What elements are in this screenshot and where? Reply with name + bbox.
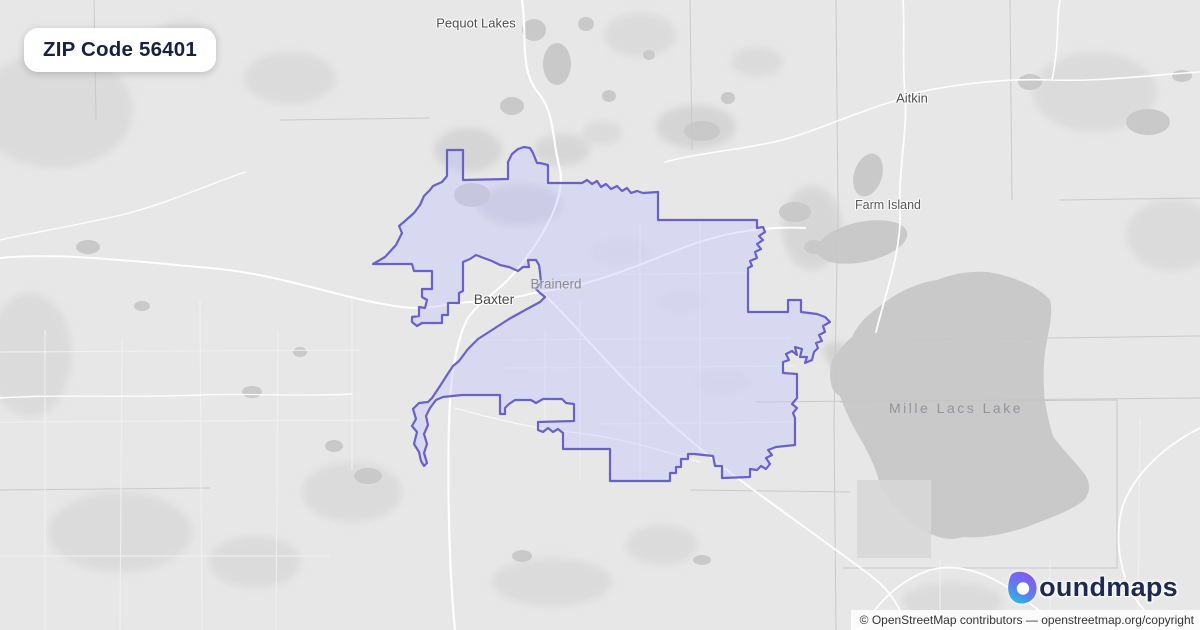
boundmaps-wordmark: oundmaps xyxy=(1039,572,1178,603)
attribution-bar: © OpenStreetMap contributors — openstree… xyxy=(851,610,1200,630)
map-canvas[interactable]: Pequot Lakes Aitkin Farm Island Baxter B… xyxy=(0,0,1200,630)
boundmaps-logo: oundmaps xyxy=(1007,569,1178,605)
park-area xyxy=(857,480,931,558)
attribution-separator: — xyxy=(1023,613,1042,627)
zip-title-badge: ZIP Code 56401 xyxy=(24,28,216,72)
zip-title-text: ZIP Code 56401 xyxy=(43,38,197,62)
boundmaps-logo-icon xyxy=(1007,569,1038,605)
basemap xyxy=(0,0,1200,630)
attribution-contributors: © OpenStreetMap contributors xyxy=(860,613,1023,627)
attribution-copyright-link[interactable]: openstreetmap.org/copyright xyxy=(1041,613,1194,627)
